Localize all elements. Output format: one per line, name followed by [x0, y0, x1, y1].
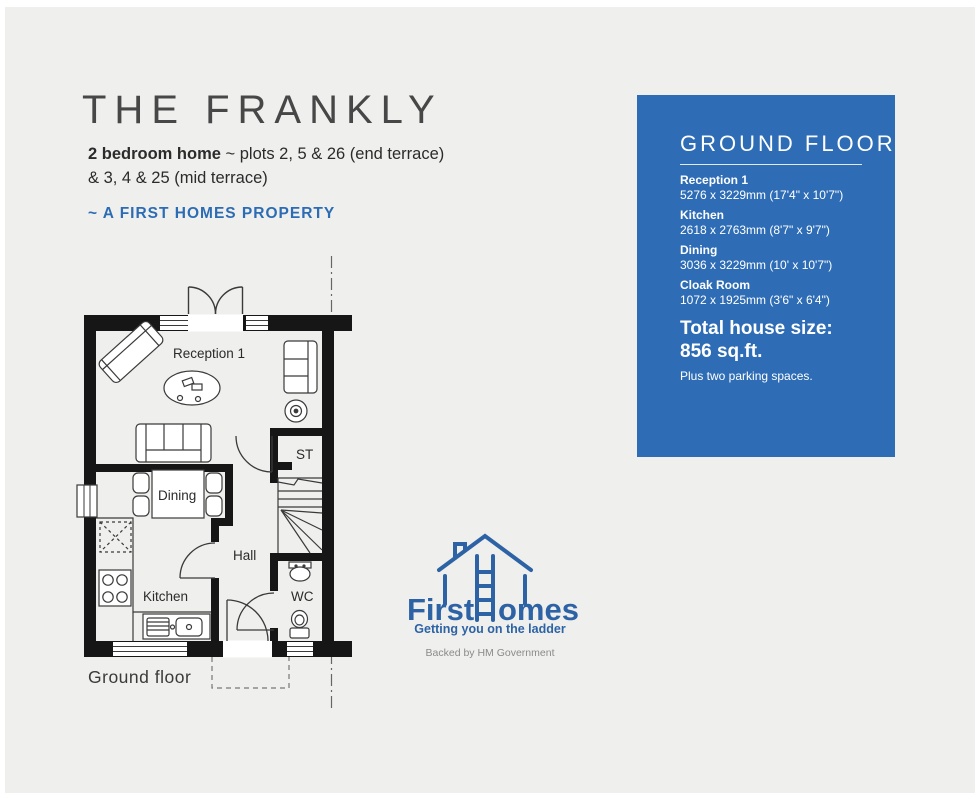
- first-homes-property-tag: ~ A FIRST HOMES PROPERTY: [88, 205, 335, 223]
- label-st: ST: [296, 447, 313, 462]
- room-entry-reception: Reception 1 5276 x 3229mm (17'4" x 10'7"…: [680, 173, 843, 202]
- subtitle-line2: & 3, 4 & 25 (mid terrace): [88, 166, 444, 190]
- parking-note: Plus two parking spaces.: [680, 369, 833, 383]
- logo-tagline: Getting you on the ladder: [402, 622, 578, 636]
- label-kitchen: Kitchen: [143, 589, 188, 604]
- subtitle-plots: ~ plots 2, 5 & 26 (end terrace): [221, 145, 444, 163]
- total-house-size: Total house size: 856 sq.ft. Plus two pa…: [680, 317, 833, 383]
- label-wc: WC: [291, 589, 314, 604]
- page: THE FRANKLY 2 bedroom home ~ plots 2, 5 …: [0, 0, 980, 799]
- label-hall: Hall: [233, 548, 256, 563]
- panel-divider: [680, 164, 862, 165]
- room-name: Dining: [680, 243, 843, 258]
- basin: [289, 562, 311, 581]
- stairs: [278, 478, 322, 553]
- subtitle: 2 bedroom home ~ plots 2, 5 & 26 (end te…: [88, 142, 444, 190]
- page-title: THE FRANKLY: [82, 88, 443, 133]
- room-name: Cloak Room: [680, 278, 843, 293]
- room-name: Reception 1: [680, 173, 843, 188]
- armchair: [284, 341, 317, 393]
- plan-caption: Ground floor: [88, 667, 191, 688]
- kitchen-fittings: [96, 518, 211, 641]
- french-doors: [189, 287, 243, 314]
- subtitle-bold: 2 bedroom home: [88, 145, 221, 163]
- label-reception: Reception 1: [173, 346, 245, 361]
- toilet: [290, 611, 309, 639]
- top-openings: [160, 315, 268, 332]
- room-entry-kitchen: Kitchen 2618 x 2763mm (8'7" x 9'7"): [680, 208, 843, 237]
- room-dims: 3036 x 3229mm (10' x 10'7"): [680, 258, 843, 273]
- ground-floor-panel: GROUND FLOOR Reception 1 5276 x 3229mm (…: [637, 95, 895, 457]
- logo-backed-by: Backed by HM Government: [402, 647, 578, 659]
- total-label: Total house size:: [680, 317, 833, 340]
- room-name: Kitchen: [680, 208, 843, 223]
- room-entry-cloakroom: Cloak Room 1072 x 1925mm (3'6" x 6'4"): [680, 278, 843, 307]
- plant-table: [285, 400, 307, 422]
- dining-window: [77, 485, 97, 517]
- room-entry-dining: Dining 3036 x 3229mm (10' x 10'7"): [680, 243, 843, 272]
- total-value: 856 sq.ft.: [680, 340, 833, 363]
- room-dimension-list: Reception 1 5276 x 3229mm (17'4" x 10'7"…: [680, 173, 843, 313]
- floor-plan: Reception 1 Dining Kitchen Hall ST WC: [60, 250, 360, 720]
- label-dining: Dining: [158, 488, 196, 503]
- reception-furniture: [97, 320, 317, 462]
- subtitle-line1: 2 bedroom home ~ plots 2, 5 & 26 (end te…: [88, 142, 444, 166]
- room-dims: 5276 x 3229mm (17'4" x 10'7"): [680, 188, 843, 203]
- hob: [99, 570, 131, 606]
- room-dims: 1072 x 1925mm (3'6" x 6'4"): [680, 293, 843, 308]
- panel-title: GROUND FLOOR: [680, 131, 896, 157]
- porch-outline: [212, 657, 289, 688]
- first-homes-logo: First omes: [405, 532, 581, 627]
- sofa: [136, 424, 211, 462]
- room-dims: 2618 x 2763mm (8'7" x 9'7"): [680, 223, 843, 238]
- sink: [143, 614, 210, 639]
